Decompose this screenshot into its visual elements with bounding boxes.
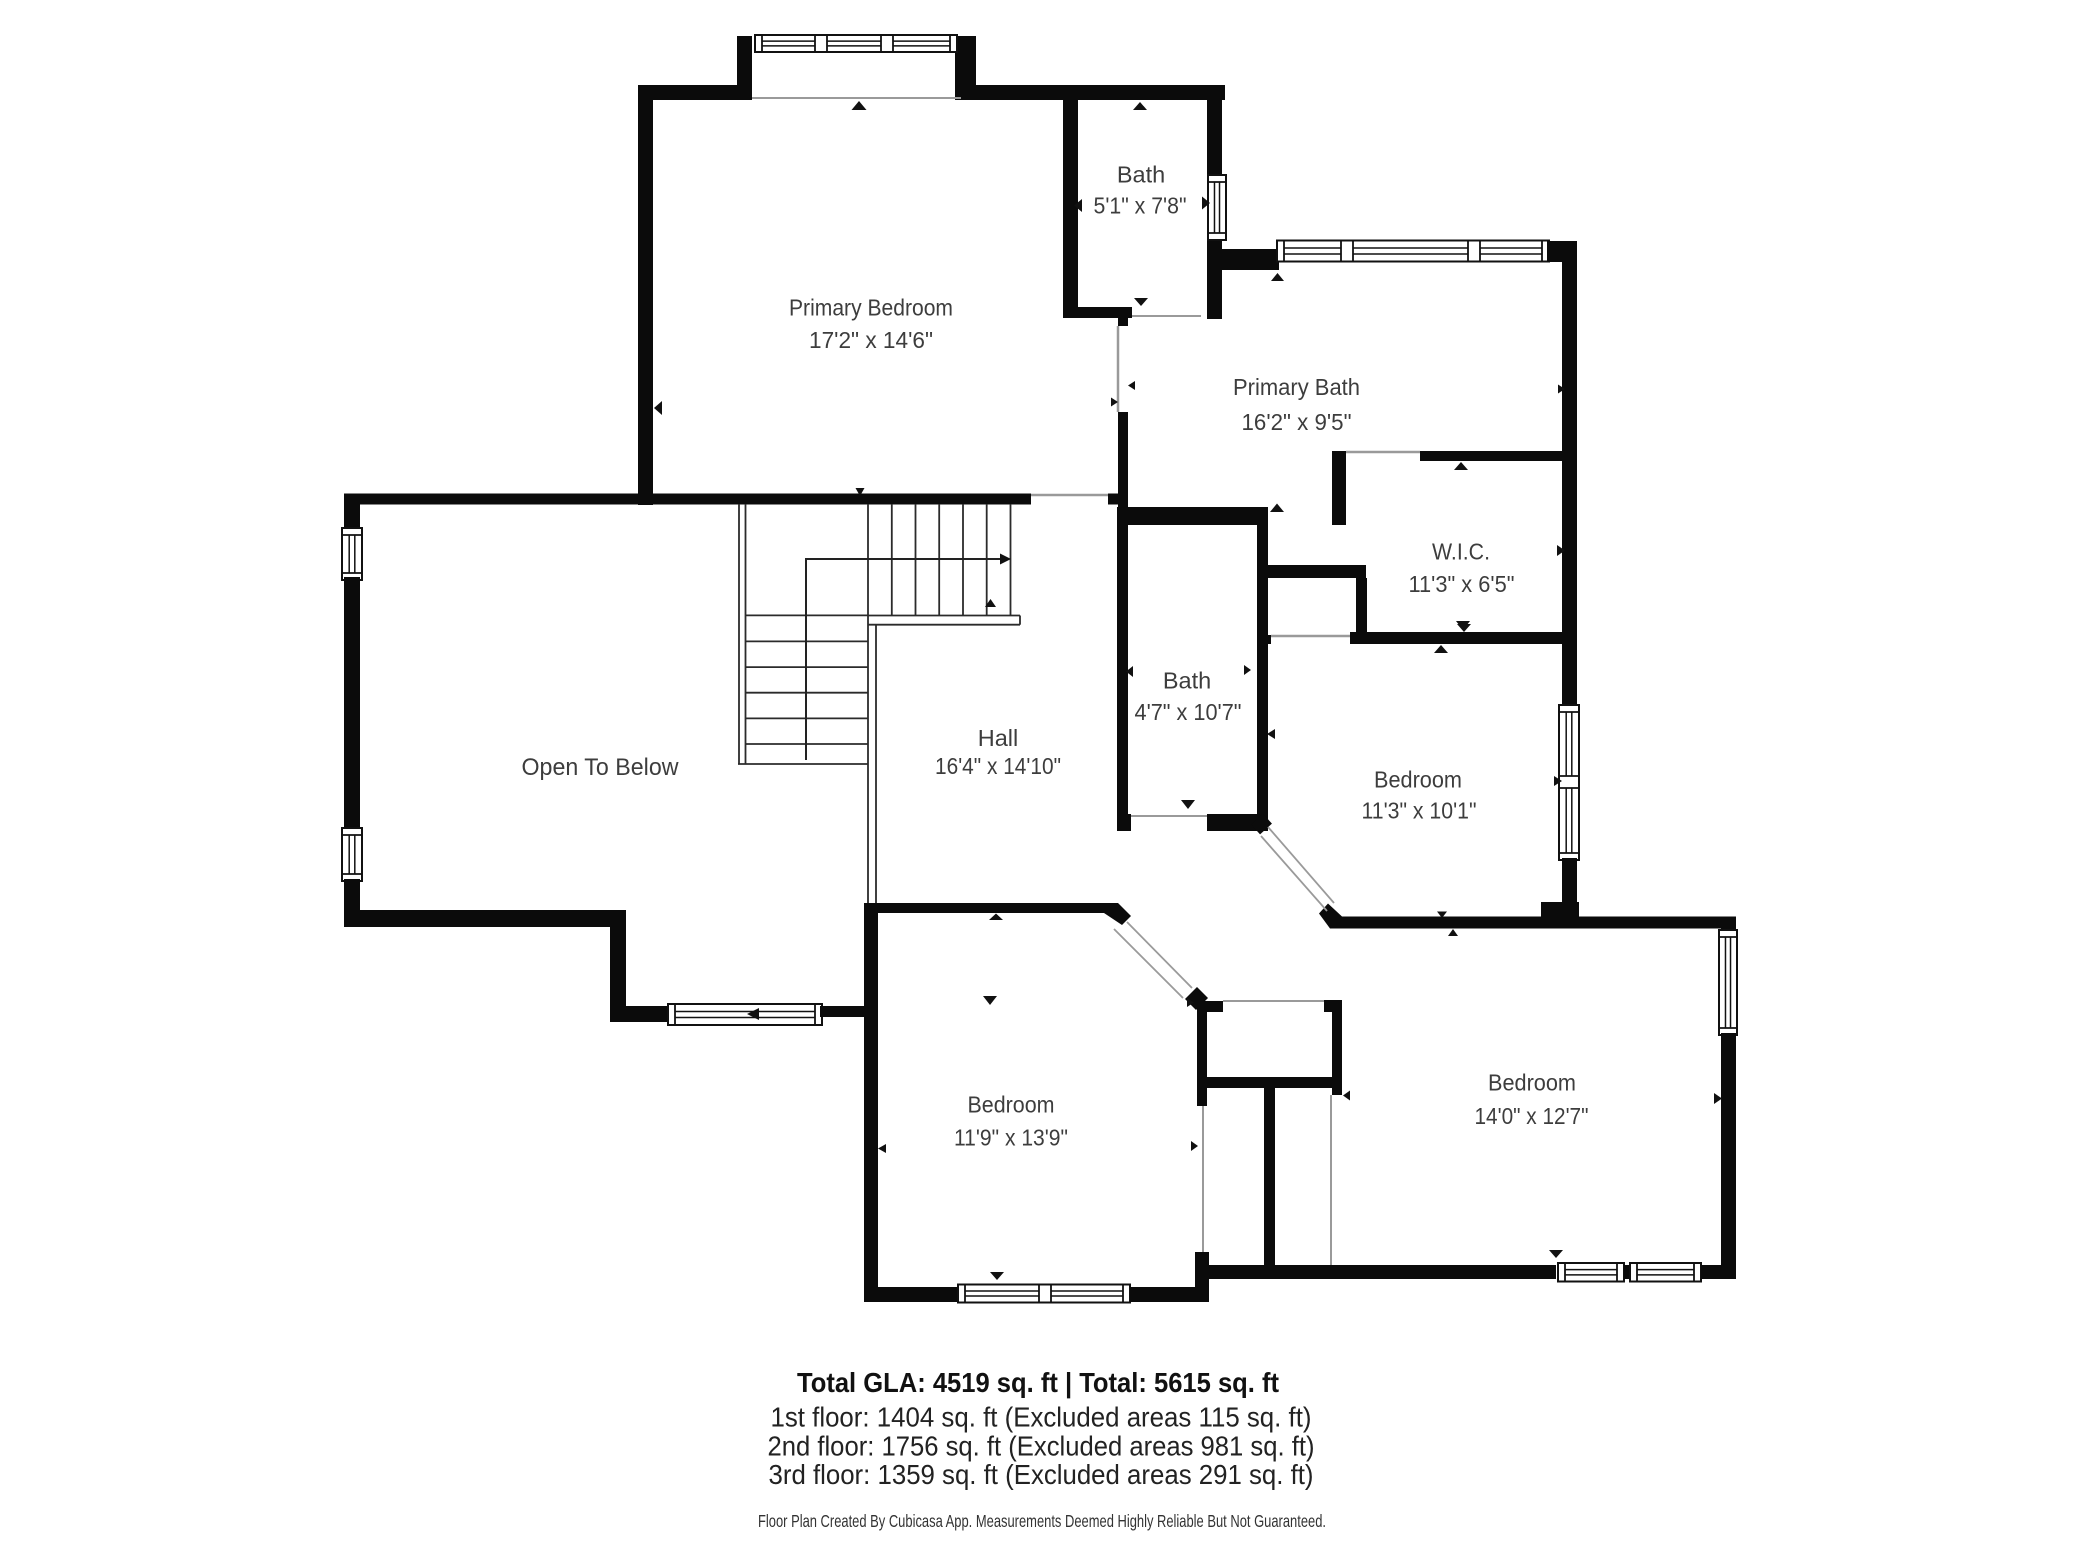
svg-text:14'0" x 12'7": 14'0" x 12'7" <box>1475 1103 1589 1129</box>
svg-text:1st floor: 1404 sq. ft (Exclud: 1st floor: 1404 sq. ft (Excluded areas 1… <box>771 1402 1312 1433</box>
svg-text:16'4" x 14'10": 16'4" x 14'10" <box>935 753 1061 779</box>
svg-text:Bath: Bath <box>1163 668 1211 694</box>
svg-text:Bath: Bath <box>1117 162 1165 188</box>
svg-text:17'2" x 14'6": 17'2" x 14'6" <box>809 327 933 353</box>
svg-text:W.I.C.: W.I.C. <box>1432 539 1490 565</box>
svg-text:Floor Plan Created By Cubicasa: Floor Plan Created By Cubicasa App. Meas… <box>758 1511 1326 1531</box>
svg-text:3rd floor: 1359 sq. ft (Exclud: 3rd floor: 1359 sq. ft (Excluded areas 2… <box>769 1459 1314 1490</box>
svg-text:16'2" x 9'5": 16'2" x 9'5" <box>1242 409 1352 435</box>
svg-text:11'9" x 13'9": 11'9" x 13'9" <box>954 1125 1068 1151</box>
svg-text:Bedroom: Bedroom <box>1488 1070 1576 1096</box>
svg-text:11'3" x 6'5": 11'3" x 6'5" <box>1409 571 1515 597</box>
svg-text:11'3" x 10'1": 11'3" x 10'1" <box>1362 798 1477 824</box>
svg-text:Primary Bedroom: Primary Bedroom <box>789 295 953 321</box>
svg-text:4'7" x 10'7": 4'7" x 10'7" <box>1135 699 1242 725</box>
svg-text:5'1" x 7'8": 5'1" x 7'8" <box>1094 193 1187 219</box>
svg-text:Primary Bath: Primary Bath <box>1233 374 1360 400</box>
svg-text:Bedroom: Bedroom <box>968 1092 1055 1118</box>
svg-text:2nd floor: 1756 sq. ft (Exclud: 2nd floor: 1756 sq. ft (Excluded areas 9… <box>768 1430 1315 1461</box>
svg-text:Bedroom: Bedroom <box>1374 767 1462 793</box>
svg-text:Open To Below: Open To Below <box>522 754 679 781</box>
svg-text:Total GLA: 4519 sq. ft | Total: Total GLA: 4519 sq. ft | Total: 5615 sq.… <box>797 1367 1279 1398</box>
svg-text:Hall: Hall <box>978 725 1018 751</box>
